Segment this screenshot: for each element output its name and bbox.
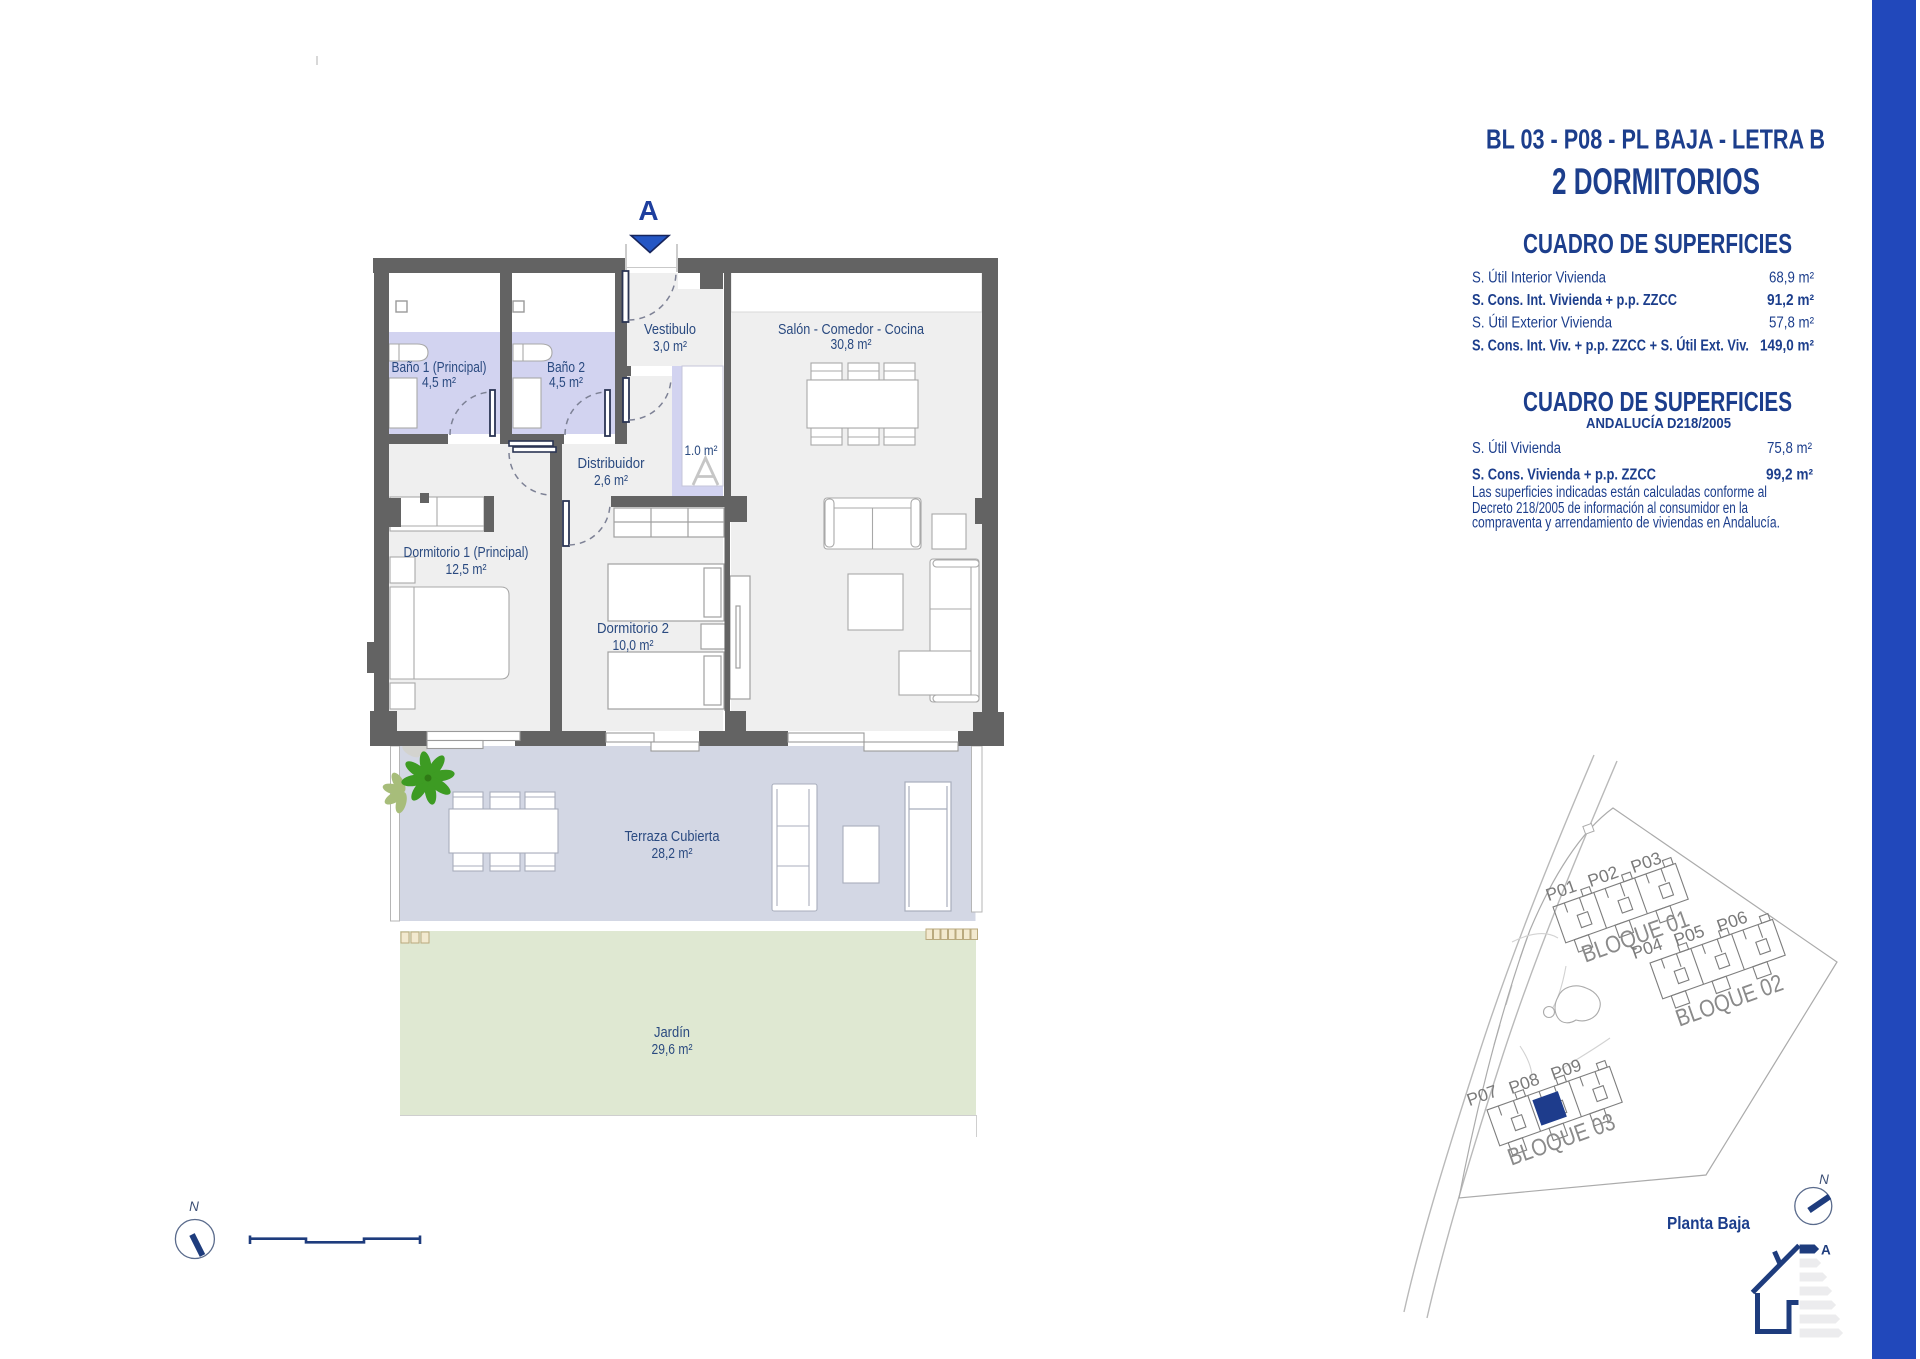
svg-text:S. Útil Exterior Vivienda: S. Útil Exterior Vivienda — [1472, 315, 1612, 332]
svg-text:Dormitorio 1 (Principal): Dormitorio 1 (Principal) — [404, 545, 529, 561]
svg-text:A: A — [1821, 1243, 1831, 1258]
svg-text:ANDALUCÍA D218/2005: ANDALUCÍA D218/2005 — [1586, 415, 1731, 432]
svg-text:68,9 m²: 68,9 m² — [1769, 269, 1814, 286]
svg-text:3,0 m²: 3,0 m² — [653, 339, 687, 355]
svg-text:S. Útil Vivienda: S. Útil Vivienda — [1472, 440, 1561, 457]
svg-text:12,5 m²: 12,5 m² — [446, 562, 487, 578]
svg-text:4,5 m²: 4,5 m² — [549, 375, 583, 391]
svg-text:1.0 m²: 1.0 m² — [685, 443, 718, 458]
svg-text:28,2 m²: 28,2 m² — [652, 846, 693, 862]
svg-text:S. Cons. Int. Vivienda + p.p.: S. Cons. Int. Vivienda + p.p. ZZCC — [1472, 292, 1677, 309]
svg-text:Dormitorio 2: Dormitorio 2 — [597, 621, 669, 637]
svg-text:2,6 m²: 2,6 m² — [594, 473, 628, 489]
svg-text:99,2 m²: 99,2 m² — [1766, 467, 1813, 484]
svg-text:10,0 m²: 10,0 m² — [613, 638, 654, 654]
svg-text:2 DORMITORIOS: 2 DORMITORIOS — [1552, 161, 1760, 202]
svg-text:4,5 m²: 4,5 m² — [422, 375, 456, 391]
svg-text:S. Útil Interior Vivienda: S. Útil Interior Vivienda — [1472, 269, 1606, 286]
svg-text:29,6 m²: 29,6 m² — [652, 1042, 693, 1058]
svg-text:Jardín: Jardín — [654, 1025, 690, 1041]
svg-text:CUADRO DE SUPERFICIES: CUADRO DE SUPERFICIES — [1523, 228, 1792, 259]
svg-text:BL 03 - P08 - PL BAJA - LETRA: BL 03 - P08 - PL BAJA - LETRA B — [1486, 124, 1825, 155]
svg-text:S. Cons. Int. Viv. + p.p. ZZCC: S. Cons. Int. Viv. + p.p. ZZCC + S. Útil… — [1472, 336, 1749, 354]
svg-text:S. Cons. Vivienda + p.p. ZZCC: S. Cons. Vivienda + p.p. ZZCC — [1472, 467, 1656, 484]
svg-text:57,8 m²: 57,8 m² — [1769, 315, 1814, 332]
svg-text:30,8 m²: 30,8 m² — [831, 337, 872, 353]
svg-text:149,0 m²: 149,0 m² — [1760, 337, 1814, 354]
svg-text:75,8 m²: 75,8 m² — [1767, 440, 1812, 457]
svg-text:Planta Baja: Planta Baja — [1667, 1213, 1750, 1233]
svg-text:Las superficies indicadas está: Las superficies indicadas están calculad… — [1472, 484, 1767, 501]
svg-text:91,2 m²: 91,2 m² — [1767, 292, 1814, 309]
svg-text:Terraza Cubierta: Terraza Cubierta — [625, 829, 721, 845]
svg-text:Salón - Comedor - Cocina: Salón - Comedor - Cocina — [778, 322, 925, 338]
svg-text:Vestibulo: Vestibulo — [644, 322, 696, 338]
svg-text:A: A — [638, 195, 658, 226]
svg-text:compraventa y arrendamiento de: compraventa y arrendamiento de viviendas… — [1472, 515, 1780, 532]
svg-text:Baño 2: Baño 2 — [547, 360, 585, 376]
svg-text:Distribuidor: Distribuidor — [578, 456, 645, 472]
svg-text:CUADRO DE SUPERFICIES: CUADRO DE SUPERFICIES — [1523, 386, 1792, 417]
svg-text:Baño 1 (Principal): Baño 1 (Principal) — [392, 360, 487, 376]
svg-text:N: N — [1819, 1172, 1829, 1187]
svg-text:N: N — [189, 1199, 199, 1214]
